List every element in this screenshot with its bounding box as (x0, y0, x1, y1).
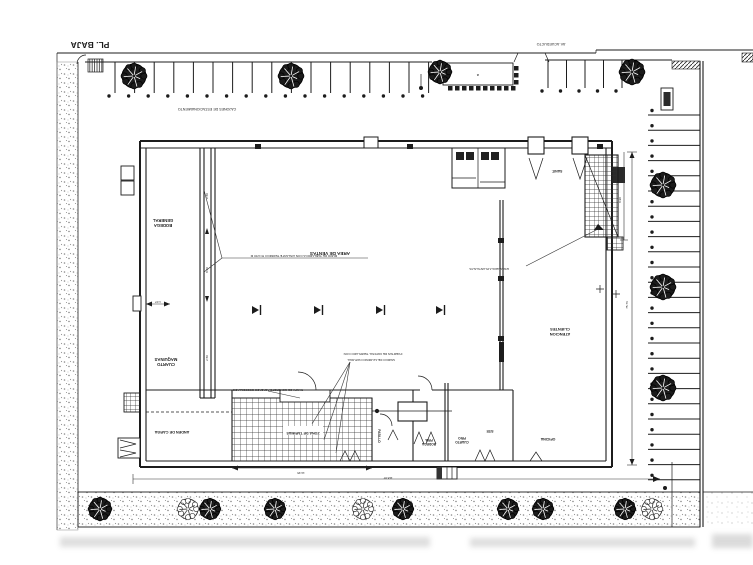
door-marker (436, 306, 443, 314)
wc-fixture (466, 152, 474, 160)
wheel-stop (107, 94, 110, 97)
door-swing (530, 452, 542, 461)
wheel-stop (650, 474, 653, 477)
wheel-stop (650, 230, 653, 233)
column (498, 276, 504, 281)
stair-landing (607, 237, 623, 250)
annotation-texts: MURO DE TABLAROCA CON AISLANTE TERMICO H… (232, 254, 509, 392)
room-label: PASILLO (377, 429, 381, 443)
annotation-text: PUERTAS DE CRISTAL TEMPLADO CON (344, 352, 403, 356)
wheel-stop (205, 94, 208, 97)
door-swing (388, 430, 398, 440)
trash-enclosure (88, 59, 103, 72)
tree-icon (650, 274, 676, 300)
dim-arrow (205, 228, 209, 234)
tree-icon (121, 63, 147, 89)
wheel-stop (540, 89, 543, 92)
wheel-stop (650, 246, 653, 249)
planter-square (476, 86, 481, 91)
driveway-curb (514, 53, 518, 62)
planting-strip-corner (703, 492, 753, 525)
dimension-text: 8.90 (618, 197, 622, 203)
planter-square (469, 86, 474, 91)
planter-square (497, 86, 502, 91)
bottom-rooms (232, 390, 542, 479)
room-label: OFICINA (540, 437, 555, 441)
planter-square (448, 86, 453, 91)
point-marker (375, 409, 379, 413)
utility-box-core (664, 92, 671, 106)
planter-square (514, 66, 519, 71)
wheel-stop (186, 94, 189, 97)
room-label: SANIT. (551, 169, 562, 173)
wheel-stop (650, 428, 653, 431)
edge-hatch (742, 53, 753, 62)
room-label: ZONA DE TARIMAS (286, 431, 320, 435)
annotation-text: MARCO DE ALUMINIO NATURAL (347, 358, 395, 362)
door-swing (298, 372, 316, 390)
entry-vestibule (528, 137, 544, 154)
wall-notch (133, 296, 141, 311)
entry-vestibule (572, 137, 588, 154)
wheel-stop (303, 94, 306, 97)
wc-fixture (481, 152, 489, 160)
architectural-plan-page: CAJONES DE ESTACIONAMIENTOaBODEGAGENERAL… (0, 0, 753, 565)
wheel-stop (650, 322, 653, 325)
dimension-text: 14.35 (297, 471, 305, 475)
tree-icon (650, 375, 676, 401)
roof-access (364, 137, 378, 148)
room-label: ATENCIONCLIENTES (550, 327, 571, 337)
wheel-stop (127, 94, 130, 97)
cross-mark (612, 290, 620, 298)
exterior-closet (121, 166, 134, 180)
wheel-stop (650, 443, 653, 446)
planter-square (462, 86, 467, 91)
wheel-stop (245, 94, 248, 97)
wheel-stop (264, 94, 267, 97)
door-swing (529, 158, 543, 179)
tree-icon (619, 59, 645, 85)
dimension-text: 1.07 (155, 300, 161, 304)
room-label: CUARTOFRIO (455, 436, 469, 444)
dimension-text: 75.76 (625, 301, 629, 309)
wheel-stop (343, 94, 346, 97)
restrooms (452, 148, 587, 188)
wheel-stop (650, 413, 653, 416)
plan-title: PL. BAJA (71, 40, 110, 50)
wheel-stop (650, 154, 653, 157)
scan-ghost (60, 534, 753, 548)
planter-square (490, 86, 495, 91)
wheel-stop (323, 94, 326, 97)
dimension-text: 8.40 (205, 267, 209, 273)
dim-arrow (205, 296, 209, 302)
wheel-stop (650, 352, 653, 355)
planter-square (504, 86, 509, 91)
room-label: CUARTOMAQUINAS (154, 357, 177, 367)
column (597, 144, 603, 149)
room-label: CAJONES DE ESTACIONAMIENTO (178, 107, 237, 111)
wheel-stop (650, 139, 653, 142)
wheel-stop (650, 458, 653, 461)
door-markers (252, 305, 445, 315)
trees (88, 59, 676, 521)
wheel-stop (596, 89, 599, 92)
room-label: ANDEN DE CARGA (154, 430, 189, 434)
wheel-stop (401, 94, 404, 97)
wheel-stop (650, 124, 653, 127)
column (498, 336, 504, 341)
wheel-stop (147, 94, 150, 97)
column (255, 144, 261, 149)
planting-strip-bottom (78, 492, 700, 527)
room-label: SITE (486, 429, 493, 433)
sidewalk-hatch (672, 61, 700, 69)
planter-square (514, 80, 519, 85)
wheel-stop (166, 94, 169, 97)
wheel-stop (650, 337, 653, 340)
annotation-text: MURO DE TABLAROCA CON AISLANTE TERMICO H… (250, 254, 337, 258)
door-swing (418, 376, 432, 390)
equipment-pad (398, 402, 427, 421)
wheel-stop (421, 94, 424, 97)
dimension-text: 2.50 (205, 193, 209, 199)
wheel-stop (577, 89, 580, 92)
exterior-stair (124, 393, 140, 412)
tree-icon (278, 63, 304, 89)
wheel-stop (614, 89, 617, 92)
wheel-stop (650, 170, 653, 173)
planter-square (514, 73, 519, 78)
planter-square (483, 86, 488, 91)
planter-square (511, 86, 516, 91)
bollard (419, 86, 423, 90)
column (407, 144, 413, 149)
double-door (475, 450, 495, 461)
wheel-stop (650, 200, 653, 203)
cross-mark (596, 285, 604, 293)
door-swing (380, 414, 392, 426)
planter-square (455, 86, 460, 91)
exterior-closet (121, 181, 134, 195)
wall-thick (499, 342, 504, 362)
wheel-stop (559, 89, 562, 92)
wheel-stop (650, 306, 653, 309)
wheel-stop (650, 398, 653, 401)
column (498, 238, 504, 243)
wheel-stop (650, 261, 653, 264)
wheel-stop (650, 367, 653, 370)
door-marker (314, 306, 321, 314)
annotation-text: ESCALERA A PLANTA ALTA (468, 267, 508, 271)
wheel-stop (650, 109, 653, 112)
room-label: BODEGAGENERAL (152, 218, 173, 228)
planting-strip-left (57, 62, 78, 530)
wheel-stop (225, 94, 228, 97)
dimension-text: 118.87 (383, 476, 392, 480)
wheel-stop (284, 94, 287, 97)
annotation-text: RAMPA DE CONCRETO ACABADO ESCOBILLADO (232, 388, 303, 392)
stair-top-right (526, 155, 623, 298)
door-marker (252, 306, 259, 314)
wc-fixture (456, 152, 464, 160)
wheel-stop (362, 94, 365, 97)
door-marker (376, 306, 383, 314)
dimension-text: 2.50 (205, 355, 209, 361)
site-boundary (57, 50, 753, 530)
wheel-stop (650, 215, 653, 218)
wheel-stop (650, 276, 653, 279)
floor-plan-canvas: CAJONES DE ESTACIONAMIENTOaBODEGAGENERAL… (0, 0, 753, 565)
street-label: AV. ACUEDUCTO (536, 42, 565, 46)
wheel-stop (382, 94, 385, 97)
landscape-strips (57, 62, 753, 530)
wc-fixture (491, 152, 499, 160)
